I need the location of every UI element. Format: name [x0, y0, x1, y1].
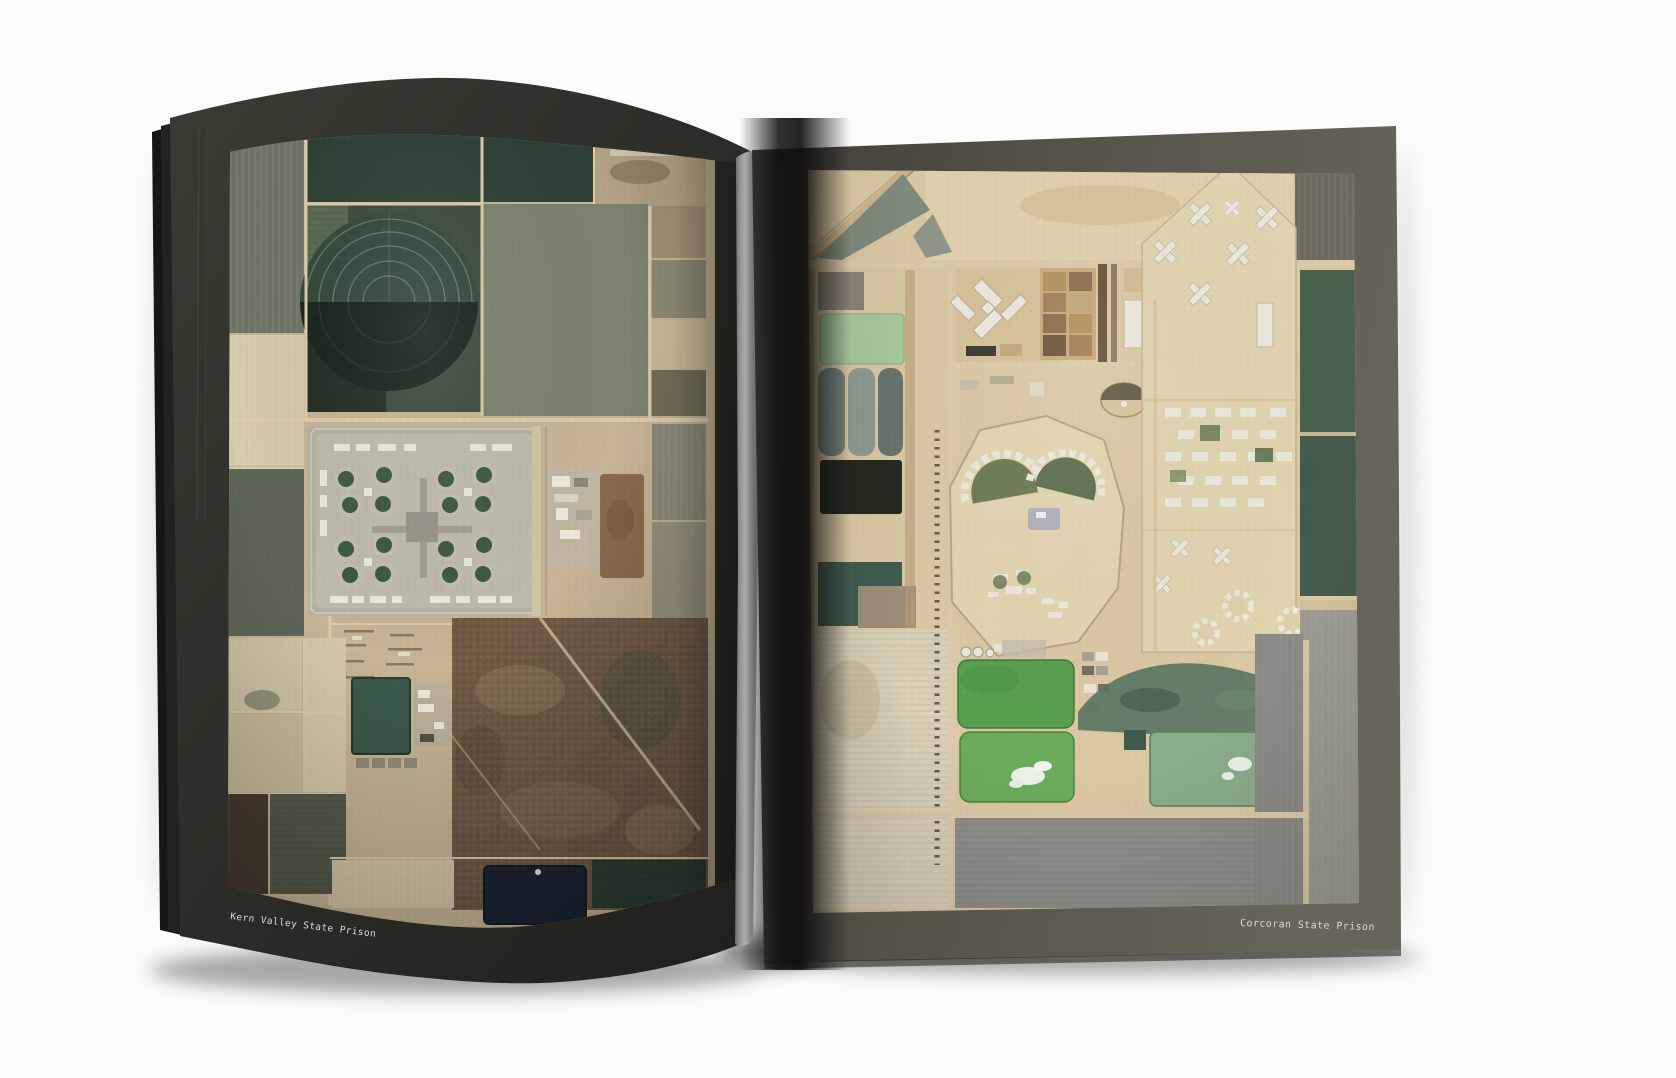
- right-aerial-photo: [800, 162, 1365, 917]
- gutter-shadow: [740, 118, 850, 970]
- book-photo-scene: Kern Valley State Prison: [0, 0, 1676, 1078]
- book: Kern Valley State Prison: [148, 78, 1420, 994]
- left-aerial-photo: [215, 95, 741, 940]
- left-page: Kern Valley State Prison: [152, 78, 758, 983]
